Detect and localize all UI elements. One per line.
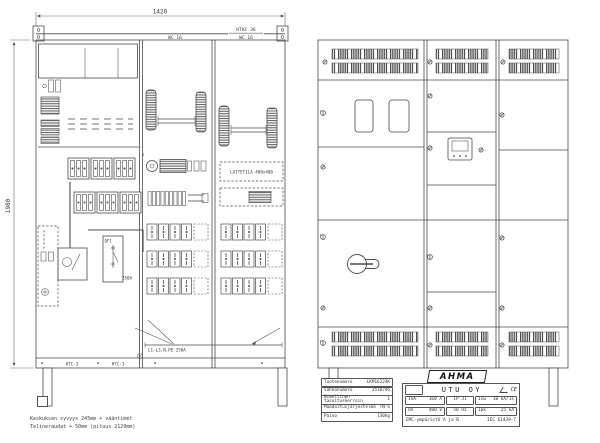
- rating-plate: UTU OY CE InA 160 A IP 31 Icw 10 kA/1s U…: [402, 383, 520, 427]
- drawing-notes: Keskuksen syvyys 245mm + vääntimet Telin…: [30, 416, 135, 432]
- screw-icon: [428, 146, 432, 150]
- fuse-row: [147, 224, 208, 240]
- right-view-outline: [318, 40, 568, 368]
- fuse-switch: [68, 158, 89, 179]
- fuse-switch: [74, 192, 95, 213]
- lock-icon: [320, 234, 326, 239]
- brand-logo: AHMA: [427, 370, 487, 383]
- row-value: 1: [387, 398, 390, 402]
- ce-mark-label: CE: [511, 387, 517, 393]
- fuse-switch: [120, 192, 141, 213]
- product-data-table: Tuotenumero LKM16224K Sähkönumero 351074…: [321, 378, 393, 422]
- lock-icons: [320, 110, 433, 345]
- fuse-row: [221, 278, 282, 294]
- drawing-sheet: 1420 1980 WC 16 HTKC 36 WC 16: [0, 0, 600, 443]
- aux-label: S: [142, 152, 145, 157]
- note-symbol-square: [37, 396, 48, 407]
- device-space-label: LAITETILA 400x400: [230, 170, 273, 175]
- main-breaker-label: QF1: [105, 239, 113, 244]
- spec-label: InA: [408, 398, 416, 402]
- screw-icon: [321, 306, 325, 310]
- note-line: Keskuksen syvyys 245mm + vääntimet: [30, 416, 135, 424]
- left-view-outline: [36, 40, 285, 368]
- row-value: 130kg: [377, 415, 390, 419]
- rotary-handle-icon: [348, 255, 380, 274]
- type-field-box: [405, 385, 423, 395]
- screw-icon: [500, 113, 504, 117]
- inspection-window: [389, 100, 409, 132]
- screw-icon: [479, 148, 483, 152]
- spec-cell-ip: IP 31: [446, 396, 474, 405]
- fuse-row: [221, 224, 282, 240]
- busbar-label: L1-L3,N,PE 250A: [148, 348, 186, 353]
- plinth-label-left: HTC-3: [66, 362, 79, 367]
- spec-label: Ipk: [478, 409, 486, 413]
- left-view-internal: WC 16 HTKC 36 WC 16: [33, 25, 288, 406]
- fuse-row: [147, 278, 208, 294]
- dim-height-label: 1980: [5, 198, 12, 213]
- spec-row-2: Un 400 V 50 Hz Ipk 25 kA: [405, 406, 517, 416]
- screw-icon: [500, 343, 504, 347]
- row-value: TN-S: [380, 406, 390, 410]
- screw-icon: [501, 60, 505, 64]
- spec-cell-ipk: Ipk 25 kA: [475, 407, 517, 416]
- row-label: Maadoitusjärjestelmä: [324, 406, 376, 410]
- screw-icon: [500, 306, 504, 310]
- plinth-label-right: HTC-3: [112, 362, 125, 367]
- spec-value: 50 Hz: [453, 409, 466, 413]
- row-label: Paino: [324, 415, 337, 419]
- row-label: Tuotenumero: [324, 381, 352, 385]
- dimension-height: 1980: [5, 40, 34, 368]
- spec-label: Icw: [478, 398, 486, 402]
- plinth: HTC-3 HTC-3: [36, 358, 285, 367]
- row-label: Sähkönumero: [324, 389, 352, 393]
- rating-plate-header: UTU OY CE: [405, 385, 517, 395]
- spec-cell-ina: InA 160 A: [405, 396, 445, 405]
- panel-meter: [448, 138, 472, 160]
- screw-icon: [428, 94, 432, 98]
- table-row: Tuotenumero LKM16224K: [321, 378, 393, 387]
- bottom-busbar: L1-L3,N,PE 250A: [135, 320, 282, 359]
- row-label: Nimellinen tasoituskerroin: [324, 396, 387, 405]
- note-line: Telineraudat + 50mm (pituus 2120mm): [30, 424, 135, 432]
- cable-duct-label-top-right: HTKC 36: [236, 27, 256, 33]
- vent-grilles-bottom: [332, 332, 559, 356]
- spec-cell-hz: 50 Hz: [446, 407, 474, 416]
- screw-icon: [428, 306, 432, 310]
- row-value: LKM16224K: [367, 381, 390, 385]
- spec-value: IP 31: [453, 398, 466, 402]
- standard-reference: IEC 61439-7: [487, 418, 516, 423]
- fuse-switch: [97, 192, 118, 213]
- dimension-width: 1420: [36, 9, 285, 27]
- company-name: UTU OY: [442, 386, 482, 394]
- engineering-drawing: 1420 1980 WC 16 HTKC 36 WC 16: [0, 0, 600, 443]
- right-view-front: [318, 40, 568, 406]
- spec-value: 25 kA: [501, 409, 514, 413]
- brand-name: AHMA: [440, 372, 475, 382]
- dim-width-label: 1420: [153, 9, 168, 16]
- vent-grilles-top: [332, 49, 559, 73]
- spec-cell-un: Un 400 V: [405, 407, 445, 416]
- emc-environment: EMC-ympäristö A ja B: [406, 418, 459, 423]
- spec-row-1: InA 160 A IP 31 Icw 10 kA/1s: [405, 396, 517, 406]
- inspection-window: [355, 100, 373, 132]
- fuse-row: [221, 251, 282, 267]
- lock-icon: [427, 254, 433, 259]
- table-row: Paino 130kg: [321, 412, 393, 421]
- cabinet-foot: [278, 368, 287, 406]
- spec-cell-icw: Icw 10 kA/1s: [475, 396, 517, 405]
- cert-mark-icon: [499, 387, 510, 393]
- screw-icon: [321, 165, 325, 169]
- lock-icon: [320, 110, 326, 115]
- spec-value: 160 A: [429, 398, 442, 402]
- spec-value: 10 kA/1s: [493, 398, 514, 402]
- screw-icon: [428, 343, 432, 347]
- screw-icon: [323, 60, 327, 64]
- cabinet-foot: [549, 368, 558, 406]
- spec-value: 400 V: [429, 409, 442, 413]
- col1-components: QF1 250A: [38, 44, 143, 306]
- screw-icons: [321, 60, 505, 347]
- fuse-switch: [91, 158, 112, 179]
- fuse-switch: [114, 158, 135, 179]
- spec-row-emc: EMC-ympäristö A ja B IEC 61439-7: [405, 417, 517, 425]
- lock-icon: [320, 340, 326, 345]
- main-breaker-rating: 250A: [122, 276, 133, 281]
- screw-icon: [500, 236, 504, 240]
- row-value: 3510746: [372, 389, 390, 393]
- spec-label: Un: [408, 409, 413, 413]
- screw-icon: [428, 60, 432, 64]
- fuse-row: [147, 251, 208, 267]
- col2-components: S: [142, 90, 208, 294]
- col3-components: LAITETILA 400x400: [219, 106, 283, 294]
- certification-marks: CE: [501, 387, 517, 393]
- table-row: Nimellinen tasoituskerroin 1: [321, 395, 393, 404]
- terminal-strip: [148, 192, 208, 206]
